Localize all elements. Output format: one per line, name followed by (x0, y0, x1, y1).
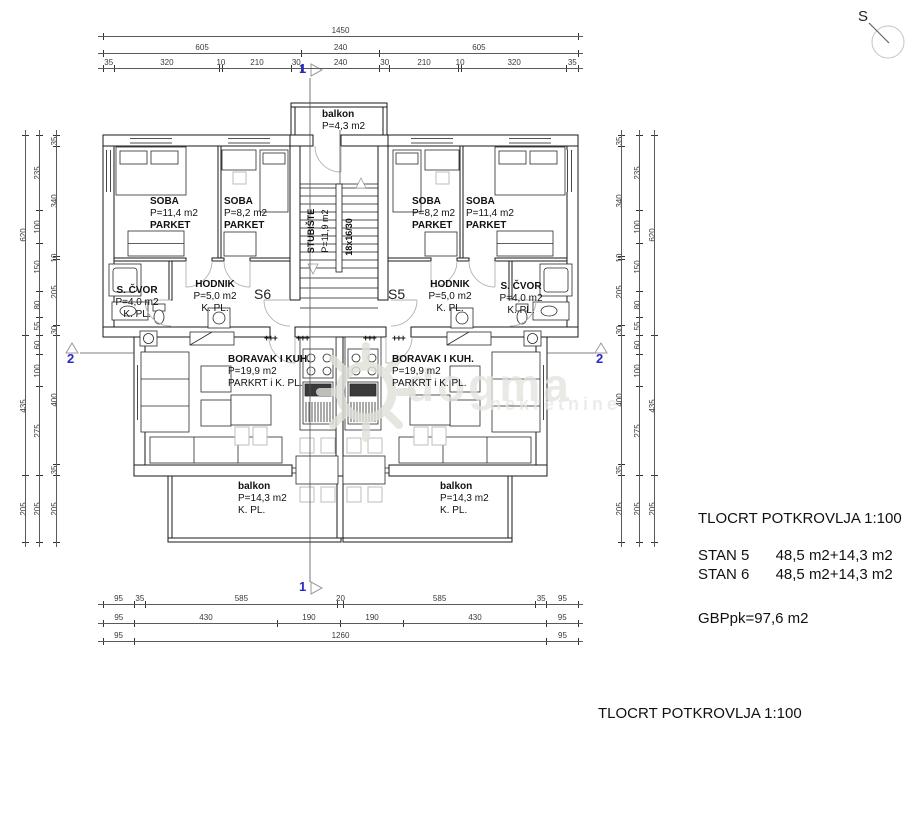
room-label-s5-scvor: S. ČVOR P=4,0 m2 K. PL. (499, 281, 542, 317)
radiator-symbol: +++ (363, 333, 376, 343)
dim-segment: 30 (614, 326, 627, 336)
stair-up-arrow-icon (356, 178, 366, 188)
dim-segment: 30 (49, 326, 62, 336)
dim-segment: 240 (301, 41, 380, 54)
room-label-s6-boravak: BORAVAK I KUH. P=19,9 m2 PARKRT i K. PL. (228, 354, 310, 390)
dim-segment: 55 (32, 318, 45, 336)
radiator-symbol: +++ (296, 333, 309, 343)
floorplan-drawing (0, 0, 913, 821)
dim-segment: 60 (632, 335, 645, 354)
dim-right-inner: 35340102053040035205 (614, 135, 627, 542)
room-label-s5-hodnik: HODNIK P=5,0 m2 K. PL. (428, 279, 471, 315)
north-label: S (858, 8, 868, 25)
unit-label-s5: S5 (388, 286, 405, 302)
dim-segment: 95 (546, 611, 578, 624)
dim-segment: 35 (535, 592, 546, 605)
dim-left-outer: 620435205 (18, 135, 31, 542)
room-label-stubiste: STUBIŠTE (306, 209, 316, 254)
legend-title: TLOCRT POTKROVLJA 1:100 (698, 510, 902, 527)
dim-segment: 205 (49, 476, 62, 542)
floorplan-page: { "colors":{"line":"#1a1a1a","marker_blu… (0, 0, 913, 821)
dim-bottom-total: 95126095 (103, 629, 578, 642)
dim-segment: 240 (301, 56, 380, 69)
dim-segment: 55 (632, 318, 645, 336)
radiator-symbol: +++ (264, 333, 277, 343)
dim-segment: 35 (49, 464, 62, 475)
dim-segment: 35 (614, 464, 627, 475)
dim-top-major: 605240605 (103, 41, 578, 54)
dim-segment: 100 (632, 211, 645, 243)
section1-marker-top: 1 (299, 61, 306, 76)
dim-segment: 400 (614, 335, 627, 464)
section2-marker-left: 2 (67, 351, 74, 366)
dim-segment: 620 (647, 135, 660, 335)
drawing-title: TLOCRT POTKROVLJA 1:100 (598, 705, 802, 722)
dim-segment: 275 (32, 387, 45, 476)
dim-segment: 435 (18, 335, 31, 476)
dim-segment: 150 (632, 243, 645, 291)
dim-segment: 340 (49, 146, 62, 256)
room-label-s5-soba1: SOBA P=11,4 m2 PARKET (466, 196, 514, 232)
section1-marker-bottom: 1 (299, 579, 306, 594)
dim-bottom-detail: 9535585205853595 (103, 592, 578, 605)
room-label-s6-soba1: SOBA P=11,4 m2 PARKET (150, 196, 198, 232)
dim-segment: 1450 (103, 24, 578, 37)
dim-segment: 100 (632, 355, 645, 387)
room-label-s6-scvor: S. ČVOR P=4,0 m2 K. PL. (115, 285, 158, 321)
dim-segment: 100 (32, 211, 45, 243)
dim-segment: 605 (103, 41, 301, 54)
dim-segment: 95 (547, 592, 578, 605)
dim-segment: 235 (32, 135, 45, 211)
dim-segment: 605 (380, 41, 578, 54)
dim-segment: 585 (344, 592, 536, 605)
stair-steps-label: 18x16/30 (344, 218, 354, 256)
dim-segment: 210 (390, 56, 459, 69)
dim-segment: 205 (32, 476, 45, 542)
dim-segment: 95 (103, 629, 134, 642)
room-label-s6-hodnik: HODNIK P=5,0 m2 K. PL. (193, 279, 236, 315)
dim-segment: 205 (647, 476, 660, 542)
dim-segment: 30 (380, 56, 390, 69)
unit-label-s6: S6 (254, 286, 271, 302)
room-label-s5-balkon: balkon P=14,3 m2 K. PL. (440, 481, 489, 517)
dim-segment: 35 (567, 56, 578, 69)
dim-segment: 150 (32, 243, 45, 291)
dim-segment: 1260 (134, 629, 547, 642)
room-label-stubiste-area: P=11,9 m2 (320, 209, 330, 252)
dim-segment: 80 (32, 292, 45, 318)
dim-right-outer: 620435205 (647, 135, 660, 542)
stair-down-arrow-icon (308, 264, 318, 274)
dim-segment: 235 (632, 135, 645, 211)
dim-segment: 430 (404, 611, 547, 624)
legend-stan6: STAN 6 48,5 m2+14,3 m2 (698, 566, 902, 583)
dim-left-mid: 235100150805560100275205 (32, 135, 45, 542)
dim-segment: 35 (134, 592, 145, 605)
dim-segment: 205 (18, 476, 31, 542)
room-label-s5-boravak: BORAVAK I KUH. P=19,9 m2 PARKRT i K. PL. (392, 354, 474, 390)
dim-segment: 95 (547, 629, 578, 642)
dim-segment: 275 (632, 387, 645, 476)
room-label-s6-balkon: balkon P=14,3 m2 K. PL. (238, 481, 287, 517)
dim-segment: 340 (614, 146, 627, 256)
dim-segment: 95 (103, 592, 134, 605)
room-label-s5-soba2: SOBA P=8,2 m2 PARKET (412, 196, 455, 232)
north-indicator-icon (869, 23, 904, 58)
legend-stan5: STAN 5 48,5 m2+14,3 m2 (698, 547, 902, 564)
radiator-symbol: +++ (392, 333, 405, 343)
dim-segment: 190 (277, 611, 340, 624)
dim-segment: 585 (146, 592, 338, 605)
dim-segment: 60 (32, 335, 45, 354)
dim-segment: 435 (647, 335, 660, 476)
dim-segment: 620 (18, 135, 31, 335)
dim-segment: 190 (341, 611, 404, 624)
room-label-balkon-top: balkon P=4,3 m2 (322, 109, 365, 133)
dim-segment: 205 (632, 476, 645, 542)
section2-marker-right: 2 (596, 351, 603, 366)
dim-segment: 205 (49, 259, 62, 325)
legend-gbp: GBPpk=97,6 m2 (698, 610, 902, 627)
dim-segment: 80 (632, 292, 645, 318)
legend-block: TLOCRT POTKROVLJA 1:100 STAN 5 48,5 m2+1… (698, 510, 902, 627)
dim-segment: 320 (114, 56, 219, 69)
dim-segment: 205 (614, 476, 627, 542)
dim-segment: 210 (223, 56, 292, 69)
dim-segment: 35 (49, 135, 62, 146)
dim-segment: 430 (135, 611, 278, 624)
dim-segment: 95 (103, 611, 135, 624)
dim-segment: 400 (49, 335, 62, 464)
dim-top-detail: 353201021030240302101032035 (103, 56, 578, 69)
dim-segment: 35 (614, 135, 627, 146)
dim-segment: 35 (103, 56, 114, 69)
dim-segment: 320 (462, 56, 567, 69)
dim-segment: 205 (614, 259, 627, 325)
dim-segment: 100 (32, 355, 45, 387)
dim-bottom-major: 9543019019043095 (103, 611, 578, 624)
dim-top-total: 1450 (103, 24, 578, 37)
dim-right-mid: 235100150805560100275205 (632, 135, 645, 542)
dim-left-inner: 35340102053040035205 (49, 135, 62, 542)
room-label-s6-soba2: SOBA P=8,2 m2 PARKET (224, 196, 267, 232)
